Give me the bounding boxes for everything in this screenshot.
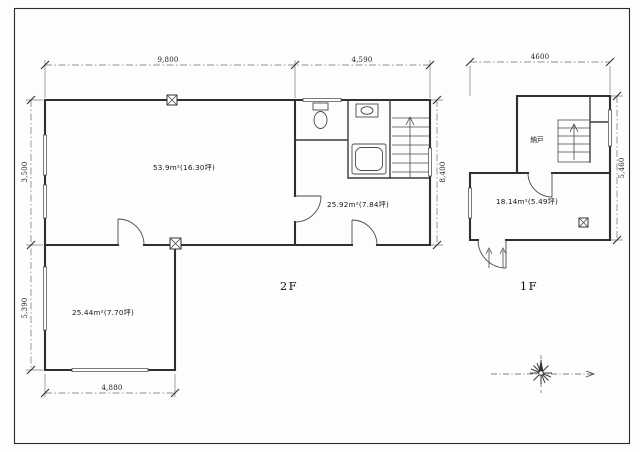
dim-left-lower: 5,390 [21,297,29,318]
extension-line [26,60,443,397]
floor2-columns [167,95,181,249]
floor2-dimensions: 9,800 4,590 3,500 5,390 4,880 8,400 [21,56,447,397]
entry-direction-arrows-icon [486,248,506,268]
stair-treads [392,118,429,172]
x-box-column-icon [579,218,588,227]
floor2-windows [43,98,431,371]
dim-top: 4600 [531,53,550,61]
floor1-title: 1F [520,279,538,293]
dim-right: 8,400 [439,161,447,182]
washbasin-bowl-icon [361,107,373,115]
floor1-dimensions: 4600 5,460 [466,53,626,244]
dim-line [31,65,437,393]
floor2-middle-area-label: 25.92m²(7.84坪) [327,200,389,209]
dim-right: 5,460 [618,157,626,178]
floor1-stairs [558,120,590,162]
window-icon [43,267,46,330]
compass-center [539,371,543,375]
washbasin-icon [356,104,378,117]
dim-tick [27,61,441,397]
floor1-interior-walls [590,96,610,162]
floor1-plan: 4600 5,460 納戸 18.14m²(5.49坪) 1F [466,53,626,293]
sheet-border [15,9,630,444]
floor1-exterior-walls [470,96,610,240]
toilet-bowl-icon [314,112,327,129]
floor2-plan: 9,800 4,590 3,500 5,390 4,880 8,400 [21,56,447,397]
floorplan-sheet: 9,800 4,590 3,500 5,390 4,880 8,400 [0,0,640,452]
floor2-fixtures [313,103,386,174]
dim-tick [466,58,621,244]
floor2-main-area-label: 53.9m²(16.30坪) [153,163,215,172]
floor2-title: 2F [280,279,298,293]
compass-rose-icon [491,355,594,393]
x-box-column-icon [167,95,177,105]
bathtub-inner-icon [356,148,383,171]
dim-top-left: 9,800 [157,56,178,64]
window-icon [468,188,471,218]
floor1-storage-label: 納戸 [530,135,544,144]
compass-north-needle [538,359,543,372]
up-arrow-icon [406,117,414,178]
dim-left-upper: 3,500 [21,161,29,182]
extension-line [470,66,623,240]
up-arrow-icon [570,124,578,160]
window-icon [43,185,46,218]
toilet-tank-icon [313,103,328,110]
window-icon [72,368,148,371]
dim-top-right: 4,590 [351,56,372,64]
dim-line [470,62,617,240]
dim-bottom: 4,880 [101,384,122,392]
window-icon [608,110,611,146]
window-icon [303,98,341,101]
window-icon [43,135,46,175]
floor2-exterior-walls [45,100,430,370]
floor2-wing-area-label: 25.44m²(7.70坪) [72,308,134,317]
x-box-column-icon [170,238,181,249]
floorplan-drawing: 9,800 4,590 3,500 5,390 4,880 8,400 [0,0,640,452]
bathtub-icon [352,144,386,174]
floor2-stairs [392,117,429,178]
floor1-area-label: 18.14m²(5.49坪) [496,197,558,206]
